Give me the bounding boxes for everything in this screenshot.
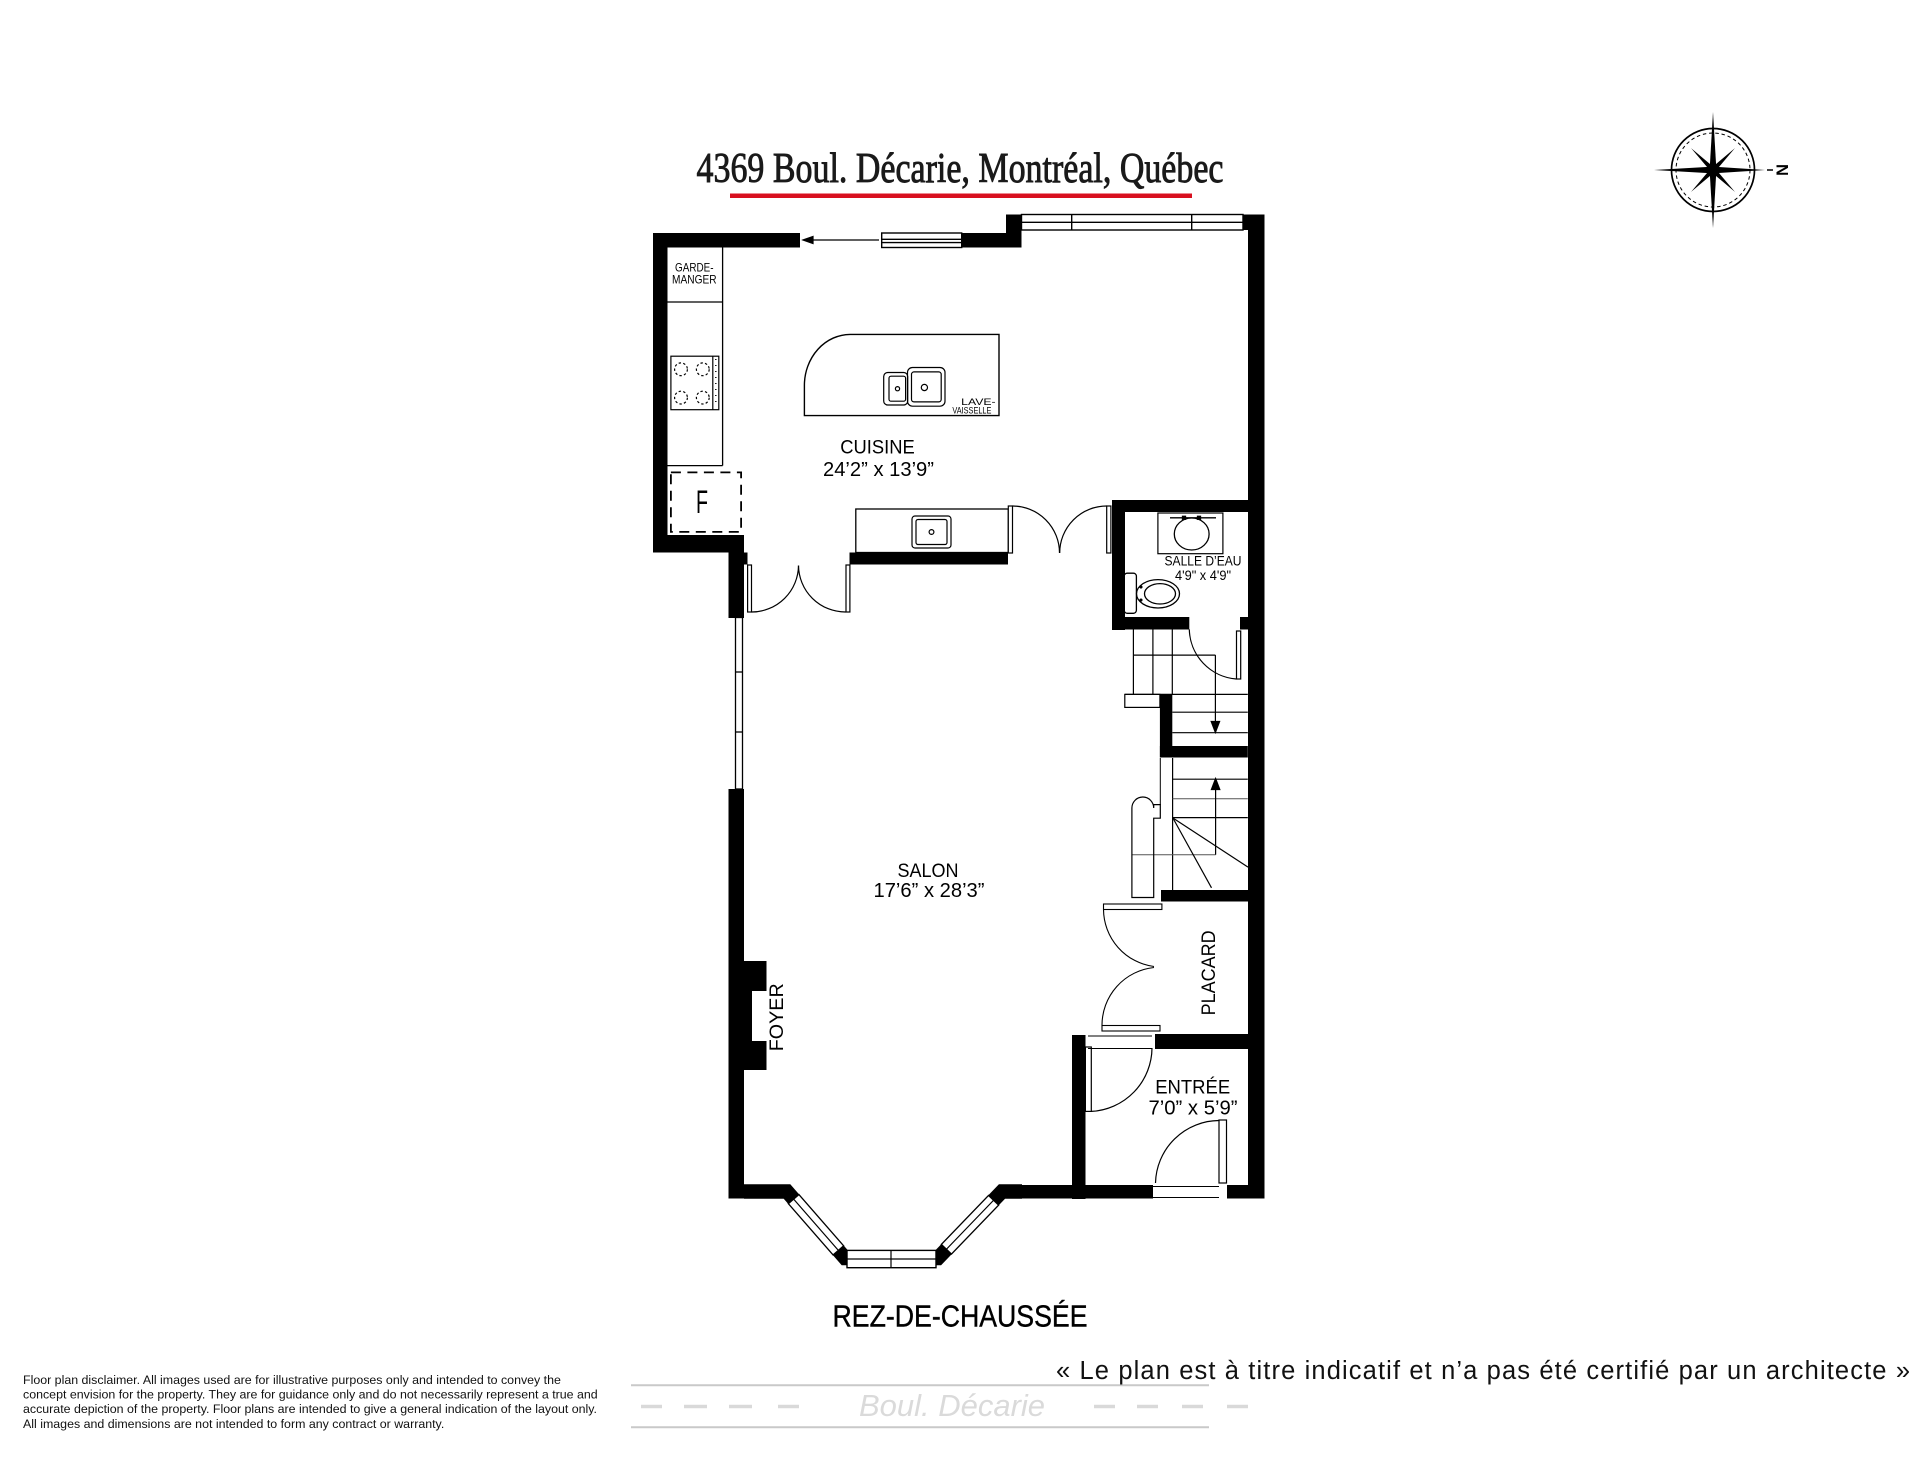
svg-text:All images and dimensions are: All images and dimensions are not intend…: [23, 1417, 444, 1431]
svg-text:VAISSELLE: VAISSELLE: [952, 405, 991, 416]
svg-text:4369 Boul. Décarie, Montréal,: 4369 Boul. Décarie, Montréal, Québec: [697, 146, 1224, 192]
svg-text:7’0” x 5’9”: 7’0” x 5’9”: [1149, 1097, 1238, 1120]
svg-text:accurate depiction of the prop: accurate depiction of the property. Floo…: [23, 1402, 597, 1416]
svg-text:SALLE D’EAU: SALLE D’EAU: [1165, 554, 1242, 569]
svg-text:Boul. Décarie: Boul. Décarie: [859, 1388, 1045, 1423]
svg-text:PLACARD: PLACARD: [1198, 930, 1220, 1015]
svg-text:« Le plan est à titre indicati: « Le plan est à titre indicatif et n’a p…: [1056, 1357, 1910, 1385]
svg-text:17’6” x 28’3”: 17’6” x 28’3”: [874, 880, 985, 902]
svg-text:F: F: [696, 484, 708, 520]
svg-text:4'9" x 4'9": 4'9" x 4'9": [1175, 568, 1231, 583]
svg-text:MANGER: MANGER: [672, 272, 717, 286]
svg-text:N: N: [1773, 164, 1791, 176]
svg-text:SALON: SALON: [898, 861, 959, 882]
svg-text:Floor plan disclaimer. All ima: Floor plan disclaimer. All images used a…: [23, 1373, 561, 1387]
svg-text:FOYER: FOYER: [767, 983, 788, 1051]
svg-text:CUISINE: CUISINE: [840, 437, 915, 459]
svg-text:ENTRÉE: ENTRÉE: [1155, 1078, 1230, 1099]
svg-text:24’2” x 13’9”: 24’2” x 13’9”: [823, 459, 934, 481]
svg-text:REZ-DE-CHAUSSÉE: REZ-DE-CHAUSSÉE: [833, 1299, 1088, 1334]
svg-text:concept envision for the prope: concept envision for the property. They …: [23, 1388, 598, 1402]
